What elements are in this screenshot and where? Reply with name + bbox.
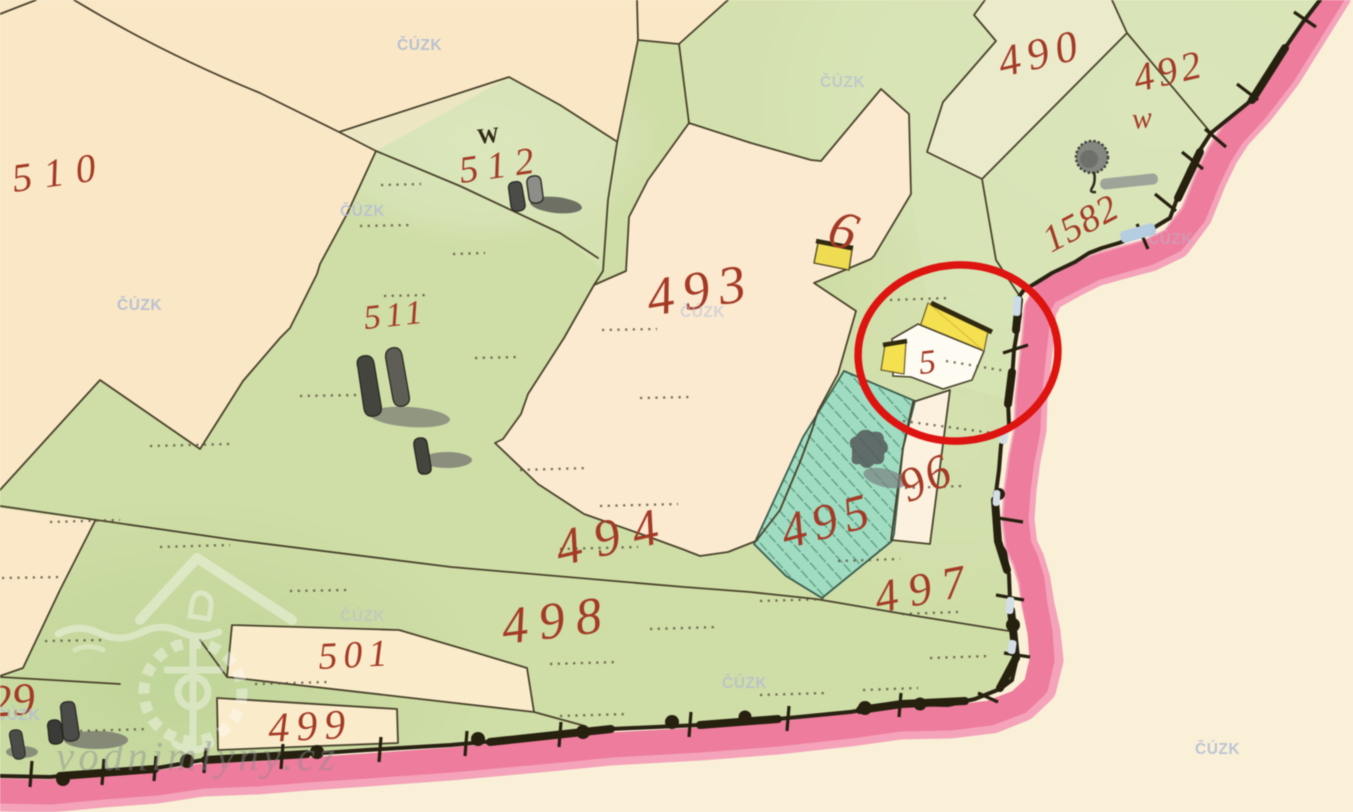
svg-text:ČÚZK: ČÚZK [340, 202, 385, 220]
svg-text:501: 501 [317, 632, 394, 678]
svg-text:ČÚZK: ČÚZK [0, 706, 40, 724]
svg-text:ČÚZK: ČÚZK [117, 296, 162, 314]
svg-text:W: W [476, 122, 500, 149]
svg-text:ČÚZK: ČÚZK [340, 607, 385, 625]
svg-text:ČÚZK: ČÚZK [1148, 230, 1193, 248]
svg-text:ČÚZK: ČÚZK [397, 36, 442, 54]
svg-text:vodnimlyny.cz: vodnimlyny.cz [56, 733, 339, 779]
svg-text:511: 511 [362, 294, 429, 337]
svg-text:ČÚZK: ČÚZK [1195, 740, 1240, 758]
svg-text:ČÚZK: ČÚZK [680, 303, 725, 321]
svg-text:ČÚZK: ČÚZK [722, 674, 767, 692]
svg-text:ČÚZK: ČÚZK [820, 73, 865, 91]
svg-text:w: w [1130, 101, 1153, 136]
